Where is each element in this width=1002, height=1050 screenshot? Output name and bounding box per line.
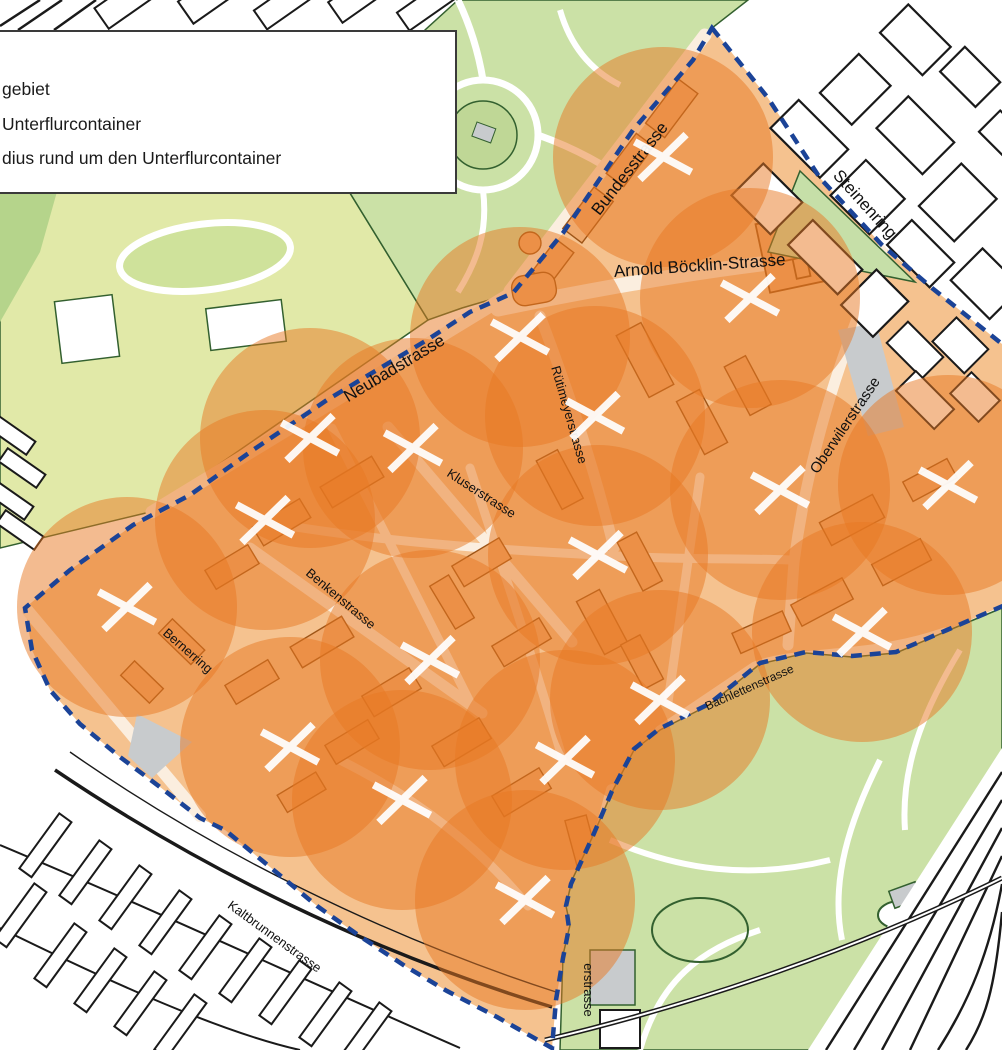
legend-item: dius rund um den Unterflurcontainer bbox=[2, 141, 455, 176]
building bbox=[19, 813, 71, 877]
building bbox=[880, 4, 951, 75]
street-line bbox=[18, 0, 62, 30]
building bbox=[139, 890, 191, 954]
legend-box: gebietUnterflurcontainerdius rund um den… bbox=[0, 30, 457, 194]
building bbox=[328, 0, 388, 23]
building bbox=[74, 948, 126, 1012]
building bbox=[940, 47, 1000, 107]
building bbox=[114, 971, 166, 1035]
legend-item: Unterflurcontainer bbox=[2, 107, 455, 142]
building bbox=[876, 96, 954, 174]
legend-items: gebietUnterflurcontainerdius rund um den… bbox=[2, 72, 455, 176]
building bbox=[820, 54, 891, 125]
building bbox=[94, 0, 166, 29]
street-line bbox=[0, 0, 40, 26]
building bbox=[299, 982, 351, 1046]
building bbox=[59, 840, 111, 904]
building bbox=[979, 111, 1002, 182]
building bbox=[219, 938, 271, 1002]
street-line bbox=[54, 0, 96, 30]
building bbox=[99, 865, 151, 929]
building bbox=[254, 0, 320, 29]
legend-item: gebiet bbox=[2, 72, 455, 107]
building bbox=[178, 0, 243, 24]
corner-streets bbox=[0, 0, 96, 30]
sports-field bbox=[54, 295, 119, 364]
building bbox=[339, 1002, 391, 1050]
building bbox=[0, 883, 46, 947]
buildings-top-strip bbox=[94, 0, 457, 31]
building bbox=[34, 923, 86, 987]
building bbox=[919, 164, 997, 242]
street-label-erstrasse: erstrasse bbox=[581, 963, 596, 1016]
building bbox=[951, 248, 1002, 319]
building bbox=[179, 915, 231, 979]
